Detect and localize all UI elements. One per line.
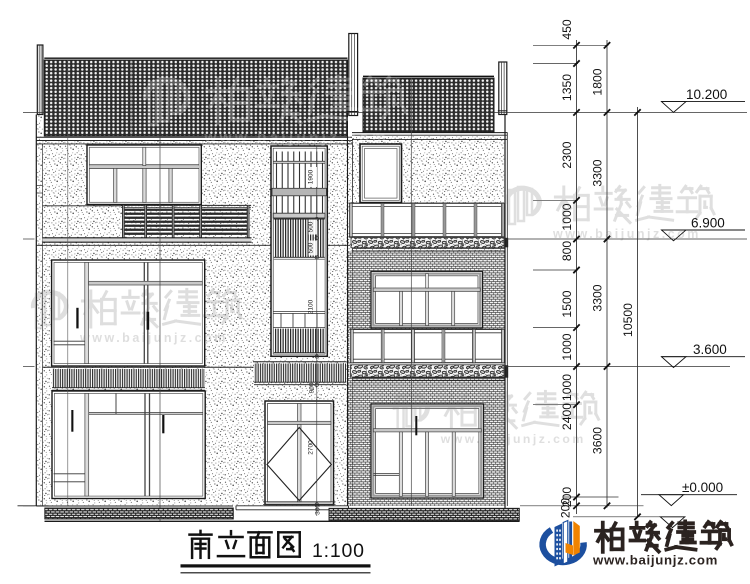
svg-text:www.baijunjz.com: www.baijunjz.com: [203, 129, 389, 146]
svg-text:500: 500: [308, 242, 315, 253]
svg-text:3.600: 3.600: [693, 342, 727, 357]
svg-text:www.baijunjz.com: www.baijunjz.com: [592, 553, 718, 568]
svg-text:450: 450: [560, 19, 574, 40]
svg-text:±0.000: ±0.000: [682, 480, 723, 495]
svg-text:1500: 1500: [560, 290, 574, 317]
svg-text:1350: 1350: [560, 74, 574, 101]
svg-text:www.baijunjz.com: www.baijunjz.com: [79, 331, 228, 345]
svg-text:10.200: 10.200: [686, 87, 727, 102]
svg-text:2300: 2300: [560, 141, 574, 168]
svg-text:www.baijunjz.com: www.baijunjz.com: [440, 432, 586, 446]
svg-text:900: 900: [309, 382, 316, 393]
svg-text:200: 200: [559, 498, 573, 519]
svg-text:10500: 10500: [621, 303, 635, 337]
svg-text:1000: 1000: [560, 333, 574, 360]
svg-text:3300: 3300: [591, 284, 605, 311]
svg-text:2100: 2100: [308, 299, 315, 314]
svg-text:2700: 2700: [308, 440, 315, 455]
svg-text:www.baijunjz.com: www.baijunjz.com: [552, 227, 701, 241]
svg-text:3300: 3300: [591, 159, 605, 186]
svg-text:1800: 1800: [591, 68, 605, 95]
svg-text:3600: 3600: [591, 427, 605, 454]
svg-text:300: 300: [315, 504, 322, 515]
svg-text:500: 500: [308, 221, 315, 232]
svg-text:1900: 1900: [308, 169, 315, 184]
svg-text:1:100: 1:100: [312, 540, 365, 562]
svg-text:800: 800: [560, 241, 574, 262]
